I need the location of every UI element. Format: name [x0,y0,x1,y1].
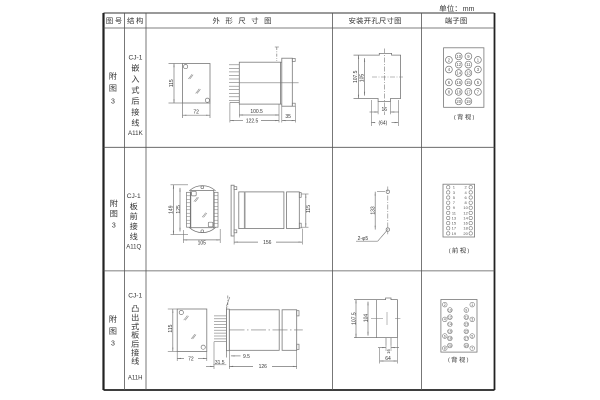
svg-text:19: 19 [452,231,457,236]
svg-text:11: 11 [466,62,471,67]
svg-text:20: 20 [448,344,452,348]
svg-text:133: 133 [371,206,377,215]
svg-text:10: 10 [448,308,452,312]
svg-text:CJ-1: CJ-1 [127,193,141,200]
svg-text:(: ( [448,358,450,364]
svg-text:12: 12 [448,315,452,319]
svg-text:100.5: 100.5 [250,109,263,115]
svg-text:CJ-1: CJ-1 [128,55,142,62]
svg-text:(64): (64) [378,120,387,126]
svg-text:(: ( [454,115,456,121]
svg-text:105: 105 [198,241,207,247]
svg-text:16: 16 [382,107,388,113]
svg-text:14: 14 [448,323,452,327]
svg-text:15: 15 [466,80,471,85]
svg-text:4: 4 [444,318,446,322]
svg-text:64: 64 [385,356,391,362]
svg-text:18: 18 [456,89,461,94]
svg-text:156: 156 [263,240,272,246]
svg-text:): ) [472,115,474,121]
svg-text:149: 149 [169,205,175,214]
svg-text:72: 72 [193,110,199,116]
svg-text:122.5: 122.5 [246,119,259,125]
svg-text:2: 2 [444,303,446,307]
svg-text:3: 3 [471,318,473,322]
svg-text:8: 8 [444,347,446,351]
svg-text:11: 11 [464,315,468,319]
svg-text:72: 72 [188,356,194,362]
svg-text:3: 3 [111,98,115,105]
svg-text:19: 19 [464,344,468,348]
svg-text:(: ( [449,248,451,254]
svg-text:105: 105 [360,74,366,83]
svg-text:20: 20 [463,231,468,236]
svg-text:107.5: 107.5 [353,70,359,83]
svg-text:A11H: A11H [128,376,143,382]
svg-text:16: 16 [448,330,452,334]
svg-text:16: 16 [386,349,391,354]
svg-text:18: 18 [448,337,452,341]
svg-text:16: 16 [456,80,461,85]
svg-text:A11K: A11K [128,130,144,137]
svg-text:6: 6 [444,334,446,338]
svg-text:115: 115 [168,324,174,332]
svg-text:9.5: 9.5 [243,354,250,360]
svg-text:3: 3 [111,341,115,348]
svg-text:13: 13 [464,323,468,327]
svg-text:5: 5 [471,334,473,338]
svg-text:3: 3 [112,222,116,229]
svg-text:115: 115 [306,205,312,213]
svg-text:17: 17 [466,89,471,94]
svg-text:13: 13 [466,71,471,76]
svg-text:20: 20 [456,99,461,104]
svg-text:125: 125 [176,205,182,214]
svg-text:17: 17 [464,337,468,341]
svg-text:9: 9 [465,308,467,312]
svg-text:14: 14 [456,71,461,76]
svg-text:): ) [467,358,469,364]
svg-text:104: 104 [363,314,369,323]
svg-text:10: 10 [456,54,461,59]
svg-text:7: 7 [471,347,473,351]
svg-text:12: 12 [456,62,461,67]
svg-text:): ) [467,248,469,254]
svg-text:115: 115 [169,79,175,87]
svg-text:CJ-1: CJ-1 [128,292,142,299]
svg-text:1: 1 [471,303,473,307]
svg-text:19: 19 [466,99,471,104]
svg-text:126: 126 [259,364,268,370]
svg-text:A11Q: A11Q [126,244,141,250]
svg-text:15: 15 [464,330,468,334]
svg-text:107.5: 107.5 [351,312,357,325]
svg-text:35: 35 [285,114,291,120]
svg-text:mm: mm [463,6,475,13]
